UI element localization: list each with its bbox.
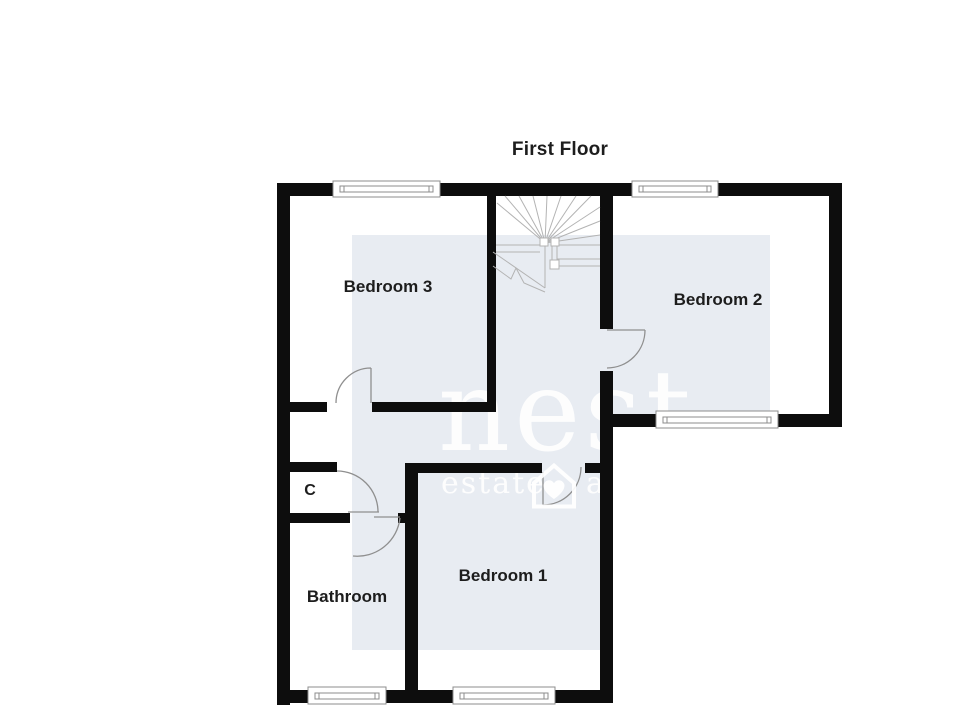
floor-plan: nest estate a — [0, 0, 980, 712]
door-swing-bathroom — [353, 517, 400, 556]
room-label-closet: C — [296, 482, 324, 500]
window — [333, 181, 440, 197]
staircase — [493, 196, 600, 292]
stair-winders — [497, 196, 600, 243]
house-heart-icon — [529, 461, 579, 511]
wall-segment — [600, 371, 613, 703]
room-label-bedroom-1: Bedroom 1 — [433, 566, 573, 586]
door-swing-bedroom-2 — [607, 330, 645, 368]
room-label-bathroom: Bathroom — [277, 587, 417, 607]
plan-structure-layer — [0, 0, 980, 712]
door-swing-bedroom-3 — [336, 368, 371, 403]
floor-title: First Floor — [430, 139, 690, 161]
wall-segment — [487, 196, 496, 412]
wall-segment — [277, 513, 350, 523]
wall-segment — [277, 402, 327, 412]
room-label-bedroom-3: Bedroom 3 — [318, 277, 458, 297]
window — [656, 411, 778, 428]
wall-segment — [405, 463, 418, 703]
window — [308, 687, 386, 704]
stair-treads — [496, 245, 600, 288]
wall-segment — [600, 196, 613, 329]
window — [632, 181, 718, 197]
room-label-bedroom-2: Bedroom 2 — [648, 290, 788, 310]
wall-segment — [829, 183, 842, 427]
wall-segment — [277, 462, 337, 472]
door-swing-closet — [337, 471, 379, 512]
windows — [308, 181, 778, 704]
wall-segment — [405, 463, 542, 473]
wall-segment — [372, 402, 496, 412]
wall-segment — [585, 463, 613, 473]
wall-segment — [277, 183, 290, 705]
stair-break-line — [493, 252, 545, 292]
window — [453, 687, 555, 704]
